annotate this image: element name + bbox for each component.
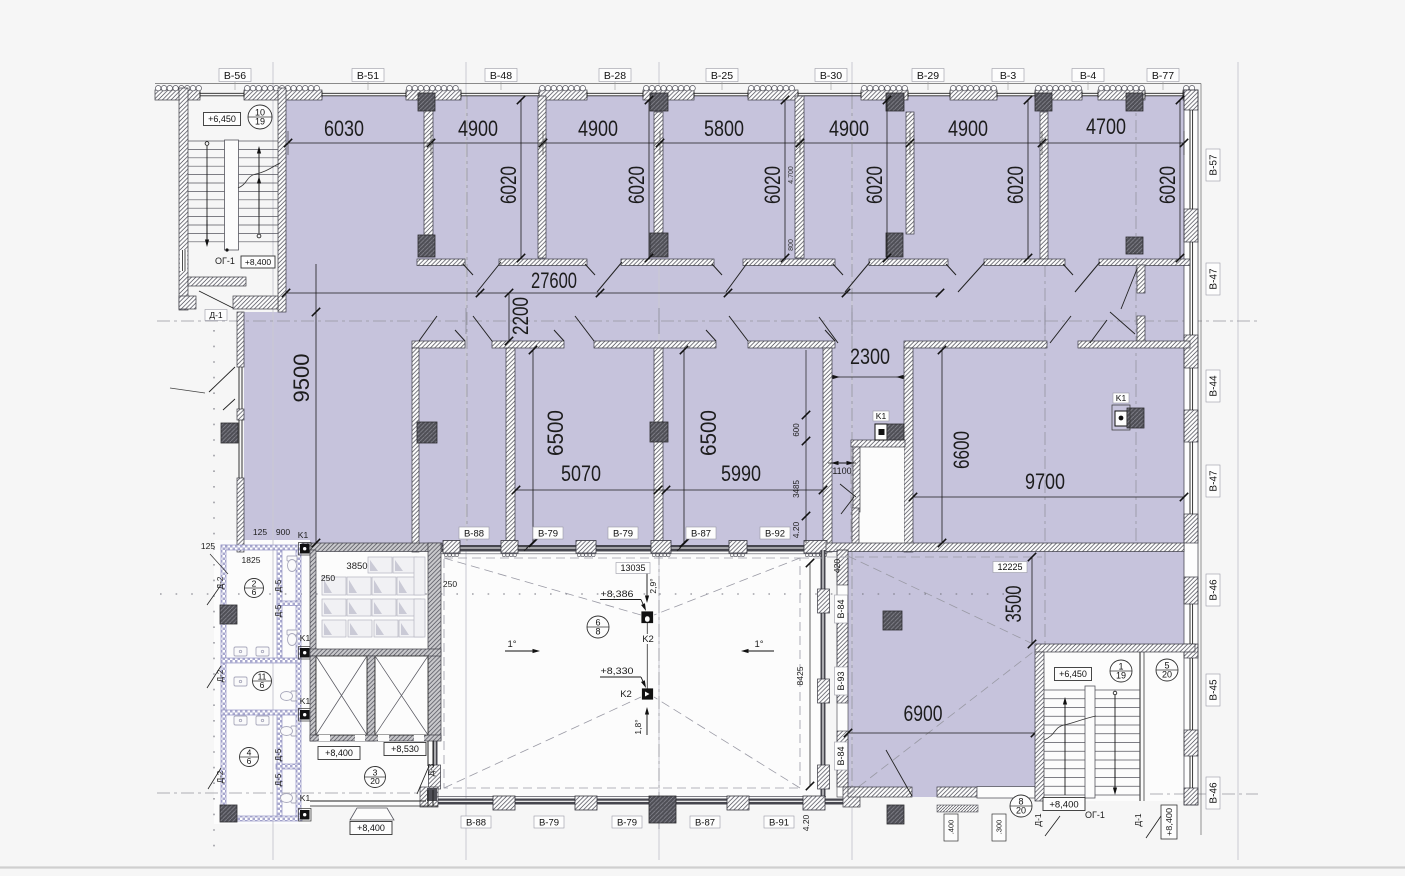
svg-text:В-88: В-88 <box>466 817 486 828</box>
svg-text:20: 20 <box>370 776 380 786</box>
svg-text:В-3: В-3 <box>1000 70 1017 82</box>
svg-text:В-91: В-91 <box>769 817 789 828</box>
svg-text:+8,530: +8,530 <box>391 744 419 754</box>
svg-text:6: 6 <box>260 680 265 690</box>
svg-text:.300: .300 <box>995 820 1004 835</box>
svg-text:4.20: 4.20 <box>801 814 811 831</box>
svg-text:6600: 6600 <box>949 431 974 469</box>
svg-text:В-79: В-79 <box>617 817 637 828</box>
svg-text:6020: 6020 <box>496 166 521 204</box>
svg-text:4900: 4900 <box>948 116 988 141</box>
svg-text:K1: K1 <box>298 530 309 540</box>
svg-text:Д-2: Д-2 <box>216 770 225 783</box>
svg-text:1°: 1° <box>754 639 763 650</box>
svg-text:4.20: 4.20 <box>791 521 801 538</box>
svg-text:1825: 1825 <box>242 555 261 565</box>
svg-text:В-92: В-92 <box>765 528 785 539</box>
svg-text:900: 900 <box>276 527 290 537</box>
svg-text:В-44: В-44 <box>1209 375 1220 397</box>
svg-text:В-4: В-4 <box>1080 70 1097 82</box>
svg-text:K1: K1 <box>300 633 311 643</box>
svg-text:3500: 3500 <box>1001 586 1026 623</box>
svg-text:Д-1: Д-1 <box>1133 813 1143 827</box>
svg-text:250: 250 <box>443 579 457 589</box>
svg-text:4900: 4900 <box>829 116 869 141</box>
svg-text:+8,386: +8,386 <box>601 589 634 600</box>
svg-text:20: 20 <box>1162 670 1172 680</box>
svg-text:Д-1: Д-1 <box>209 310 223 320</box>
svg-text:20: 20 <box>1016 806 1026 816</box>
svg-text:В-87: В-87 <box>695 817 715 828</box>
svg-text:K1: K1 <box>300 793 311 803</box>
svg-text:В-46: В-46 <box>1209 579 1220 601</box>
svg-text:В-45: В-45 <box>1209 679 1220 701</box>
svg-text:+8,400: +8,400 <box>325 748 353 758</box>
svg-text:+8,400: +8,400 <box>357 823 385 833</box>
svg-text:2,9°: 2,9° <box>648 578 658 593</box>
svg-text:6500: 6500 <box>543 410 568 456</box>
svg-text:+8,400: +8,400 <box>1049 799 1078 810</box>
svg-text:4.700: 4.700 <box>788 166 795 184</box>
svg-text:В-48: В-48 <box>490 70 512 82</box>
svg-text:В-28: В-28 <box>604 70 626 82</box>
svg-text:3850: 3850 <box>346 561 367 572</box>
svg-text:6: 6 <box>247 756 252 766</box>
svg-text:В-87: В-87 <box>691 528 711 539</box>
svg-text:8425: 8425 <box>795 666 805 685</box>
svg-text:В-47: В-47 <box>1209 470 1220 492</box>
svg-text:+8,330: +8,330 <box>601 666 634 677</box>
svg-text:Д-2: Д-2 <box>216 576 225 589</box>
svg-text:125: 125 <box>201 541 215 551</box>
svg-text:1100: 1100 <box>832 466 851 476</box>
svg-text:4900: 4900 <box>458 116 498 141</box>
svg-text:8: 8 <box>595 627 600 637</box>
svg-text:6020: 6020 <box>760 166 785 204</box>
svg-text:+8,400: +8,400 <box>245 257 272 267</box>
svg-text:В-46: В-46 <box>1209 782 1220 804</box>
svg-text:19: 19 <box>255 117 265 127</box>
svg-text:В-79: В-79 <box>539 817 559 828</box>
svg-text:6: 6 <box>252 587 257 597</box>
svg-text:В-79: В-79 <box>613 528 633 539</box>
svg-text:6900: 6900 <box>904 701 943 726</box>
svg-text:6020: 6020 <box>1155 166 1180 204</box>
svg-text:В-51: В-51 <box>357 70 379 82</box>
svg-text:В-47: В-47 <box>1209 268 1220 290</box>
svg-text:6020: 6020 <box>624 166 649 204</box>
svg-text:4700: 4700 <box>1086 114 1126 139</box>
svg-text:600: 600 <box>792 423 801 437</box>
svg-text:2300: 2300 <box>850 344 890 369</box>
svg-text:6020: 6020 <box>862 166 887 204</box>
svg-text:6020: 6020 <box>1003 166 1028 204</box>
svg-text:+8,400: +8,400 <box>1164 808 1174 836</box>
svg-text:19: 19 <box>1116 671 1126 681</box>
svg-text:Д-3: Д-3 <box>427 763 436 776</box>
svg-text:ОГ-1: ОГ-1 <box>1085 810 1105 820</box>
svg-text:Д-5: Д-5 <box>274 579 283 592</box>
svg-text:9500: 9500 <box>289 354 314 403</box>
svg-text:В-25: В-25 <box>711 70 733 82</box>
svg-text:420: 420 <box>832 559 842 573</box>
svg-text:4900: 4900 <box>578 116 618 141</box>
svg-text:+6,450: +6,450 <box>1059 669 1087 679</box>
svg-text:Д-5: Д-5 <box>274 604 283 617</box>
svg-text:Д-5: Д-5 <box>274 748 283 761</box>
svg-text:9700: 9700 <box>1025 469 1065 494</box>
svg-text:12225: 12225 <box>997 562 1022 572</box>
svg-text:800: 800 <box>788 239 795 251</box>
svg-text:Д-1: Д-1 <box>1033 813 1043 827</box>
svg-text:.400: .400 <box>947 820 956 835</box>
svg-text:6030: 6030 <box>324 116 364 141</box>
svg-text:ОГ-1: ОГ-1 <box>215 256 235 266</box>
svg-text:5990: 5990 <box>721 461 761 486</box>
svg-text:5800: 5800 <box>704 116 744 141</box>
svg-text:250: 250 <box>321 573 335 583</box>
svg-text:13035: 13035 <box>620 563 645 573</box>
svg-text:Д-5: Д-5 <box>274 773 283 786</box>
svg-text:Д-2: Д-2 <box>216 669 225 682</box>
svg-text:1°: 1° <box>507 639 516 650</box>
svg-text:В-29: В-29 <box>917 70 939 82</box>
svg-text:В-56: В-56 <box>224 70 246 82</box>
svg-text:2200: 2200 <box>508 297 533 335</box>
svg-text:В-79: В-79 <box>538 528 558 539</box>
svg-text:K2: K2 <box>620 689 632 700</box>
svg-text:В-30: В-30 <box>820 70 842 82</box>
svg-text:K1: K1 <box>1116 393 1127 403</box>
svg-text:В-93: В-93 <box>836 671 846 690</box>
svg-text:27600: 27600 <box>531 268 577 293</box>
svg-text:125: 125 <box>253 527 267 537</box>
svg-text:K1: K1 <box>300 696 311 706</box>
svg-text:В-84: В-84 <box>836 746 846 765</box>
svg-text:K2: K2 <box>642 634 654 645</box>
svg-text:+6,450: +6,450 <box>208 114 236 124</box>
svg-text:В-57: В-57 <box>1209 154 1220 176</box>
svg-text:1,8°: 1,8° <box>633 719 643 734</box>
svg-text:В-84: В-84 <box>836 599 846 618</box>
svg-text:3485: 3485 <box>792 480 801 498</box>
svg-text:K1: K1 <box>876 411 887 421</box>
svg-text:5070: 5070 <box>561 461 601 486</box>
svg-text:В-77: В-77 <box>1152 70 1174 82</box>
svg-text:6500: 6500 <box>696 410 721 456</box>
svg-text:В-88: В-88 <box>464 528 484 539</box>
